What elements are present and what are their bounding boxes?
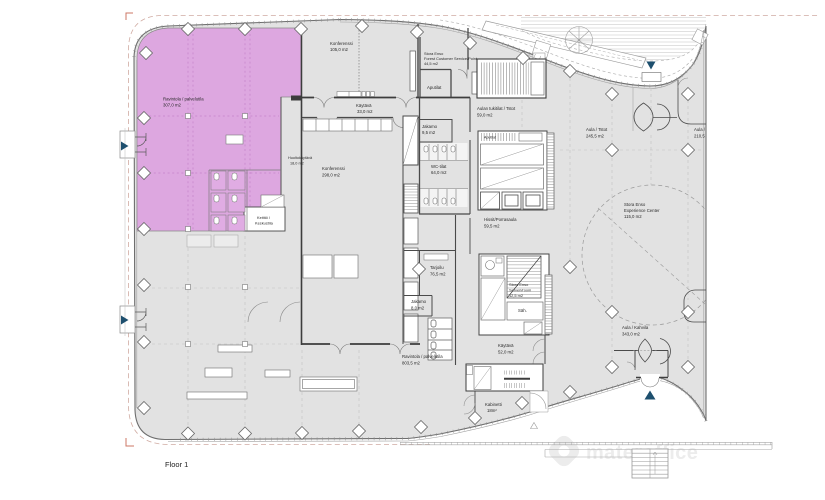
svg-text:76,5 m2: 76,5 m2 bbox=[430, 272, 446, 277]
svg-text:343,0 m2: 343,0 m2 bbox=[622, 332, 641, 337]
svg-text:52,0 m2: 52,0 m2 bbox=[498, 350, 514, 355]
svg-text:Käytävä: Käytävä bbox=[498, 343, 514, 348]
svg-text:WC-tilat: WC-tilat bbox=[431, 164, 447, 169]
svg-text:12,5 m2: 12,5 m2 bbox=[509, 293, 523, 298]
svg-text:59,5 m2: 59,5 m2 bbox=[484, 224, 500, 229]
svg-text:64,0 m2: 64,0 m2 bbox=[431, 170, 447, 175]
svg-text:210,5: 210,5 bbox=[694, 134, 705, 139]
svg-text:Keskustila: Keskustila bbox=[255, 221, 274, 226]
svg-text:Aula / Tstot: Aula / Tstot bbox=[586, 127, 608, 132]
svg-text:18m²: 18m² bbox=[487, 408, 497, 413]
svg-text:18,0 m2: 18,0 m2 bbox=[290, 162, 304, 166]
svg-text:9,5 m2: 9,5 m2 bbox=[422, 130, 436, 135]
svg-text:Säh.: Säh. bbox=[518, 308, 527, 313]
svg-text:33,0 m2: 33,0 m2 bbox=[357, 109, 373, 114]
svg-text:Konferenssi: Konferenssi bbox=[330, 41, 353, 46]
svg-text:Keittiö /: Keittiö / bbox=[257, 215, 271, 220]
svg-text:245,5 m2: 245,5 m2 bbox=[586, 134, 605, 139]
svg-text:Ravintola / palvelutila: Ravintola / palvelutila bbox=[402, 354, 443, 359]
svg-text:Aputilat: Aputilat bbox=[427, 85, 442, 90]
svg-text:Aula /: Aula / bbox=[694, 127, 706, 132]
svg-text:Jakamo: Jakamo bbox=[422, 124, 438, 129]
svg-text:Hissit/Porrasaula: Hissit/Porrasaula bbox=[484, 217, 517, 222]
svg-text:Serveri/room: Serveri/room bbox=[509, 288, 531, 293]
svg-text:Stora Enso: Stora Enso bbox=[624, 202, 646, 207]
svg-text:44,5 m2: 44,5 m2 bbox=[424, 61, 438, 66]
svg-text:Konferenssi: Konferenssi bbox=[322, 166, 345, 171]
svg-text:Aputilat: Aputilat bbox=[484, 136, 496, 140]
svg-text:Floor 1: Floor 1 bbox=[165, 460, 188, 469]
svg-text:8,0 m2: 8,0 m2 bbox=[411, 306, 425, 311]
svg-text:Aulan tukitilat / Tstot: Aulan tukitilat / Tstot bbox=[477, 106, 516, 111]
svg-text:803,5 m2: 803,5 m2 bbox=[402, 361, 421, 366]
svg-text:Käytävä: Käytävä bbox=[356, 103, 372, 108]
svg-text:Experience Center: Experience Center bbox=[624, 208, 660, 213]
svg-text:Stora Enso: Stora Enso bbox=[509, 282, 528, 287]
svg-text:Tarjoilu: Tarjoilu bbox=[430, 265, 444, 270]
svg-text:115,0 m2: 115,0 m2 bbox=[624, 214, 642, 219]
svg-text:Ravintola / palvelutila: Ravintola / palvelutila bbox=[163, 97, 204, 102]
svg-text:Kabinetti: Kabinetti bbox=[485, 402, 502, 407]
svg-text:Aula / Kahvila: Aula / Kahvila bbox=[622, 325, 649, 330]
svg-text:307,0 m2: 307,0 m2 bbox=[163, 103, 182, 108]
svg-text:105,0 m2: 105,0 m2 bbox=[330, 47, 349, 52]
svg-text:Huoltokäytävä: Huoltokäytävä bbox=[288, 156, 313, 160]
svg-text:59,0 m2: 59,0 m2 bbox=[477, 113, 493, 118]
svg-text:Jakamo: Jakamo bbox=[411, 299, 427, 304]
svg-text:298,0 m2: 298,0 m2 bbox=[322, 173, 341, 178]
